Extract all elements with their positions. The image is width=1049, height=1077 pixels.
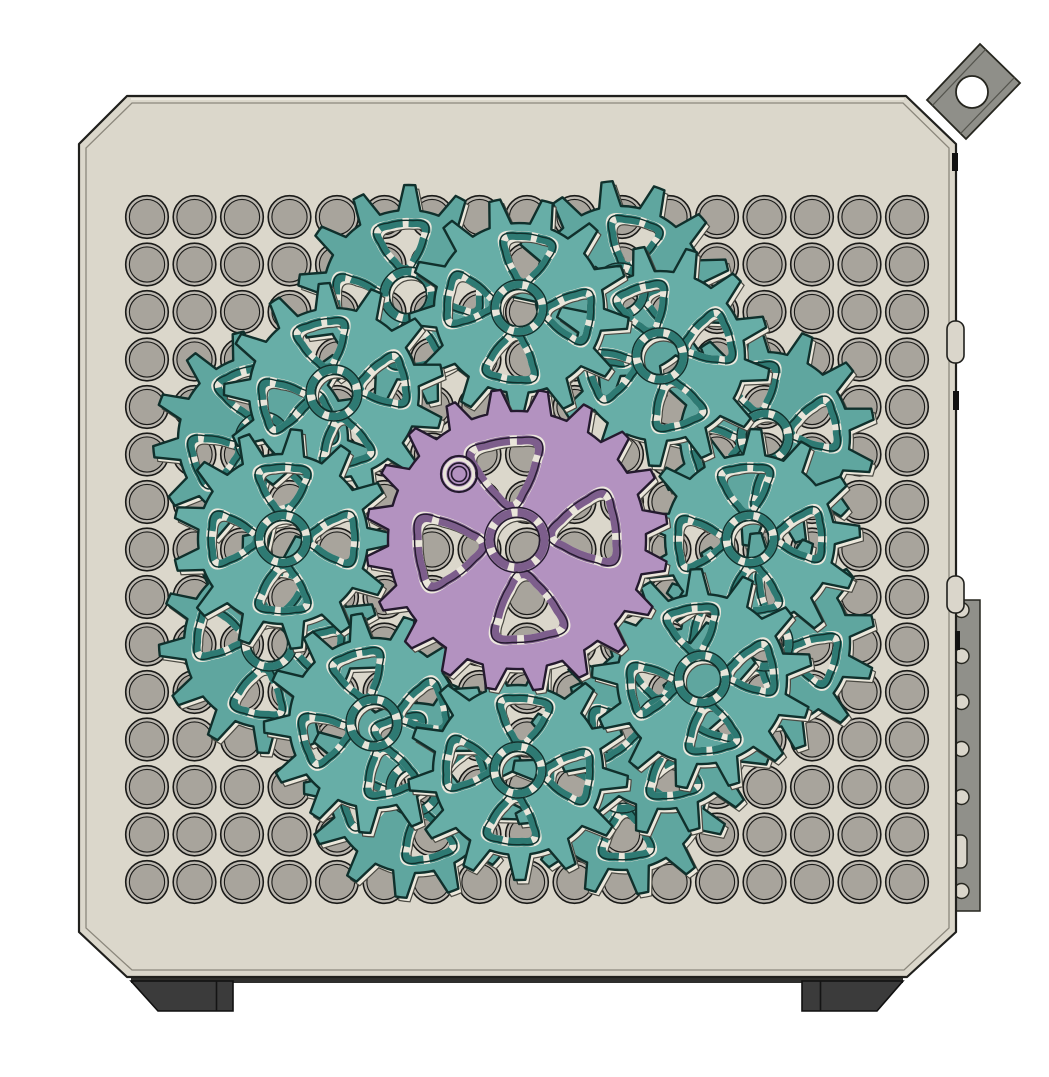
vent-hole xyxy=(177,247,212,282)
right-foot xyxy=(802,981,903,1011)
vent-hole xyxy=(889,484,924,519)
vent-hole xyxy=(129,674,164,709)
vent-hole xyxy=(272,864,307,899)
edge-clip xyxy=(955,631,960,650)
edge-clip xyxy=(953,391,959,410)
vent-hole xyxy=(889,864,924,899)
vent-hole xyxy=(889,437,924,472)
vent-hole xyxy=(794,199,829,234)
vent-hole xyxy=(889,247,924,282)
vent-hole xyxy=(747,247,782,282)
vent-hole xyxy=(177,294,212,329)
vent-hole xyxy=(129,389,164,424)
vent-hole xyxy=(794,247,829,282)
vent-hole xyxy=(129,247,164,282)
bearing-detail xyxy=(452,467,467,482)
edge-latch-slot xyxy=(947,321,964,363)
vent-hole xyxy=(842,817,877,852)
vent-hole xyxy=(889,389,924,424)
vent-hole xyxy=(747,864,782,899)
vent-hole xyxy=(747,817,782,852)
cad-canvas xyxy=(0,0,1049,1077)
vent-hole xyxy=(129,817,164,852)
vent-hole xyxy=(224,864,259,899)
vent-hole xyxy=(129,342,164,377)
vent-hole xyxy=(272,817,307,852)
vent-hole xyxy=(129,294,164,329)
vent-hole xyxy=(129,722,164,757)
vent-hole xyxy=(177,722,212,757)
vent-hole xyxy=(889,579,924,614)
vent-hole xyxy=(889,342,924,377)
vent-hole xyxy=(794,817,829,852)
vent-hole xyxy=(177,769,212,804)
vent-hole xyxy=(794,294,829,329)
vent-hole xyxy=(842,864,877,899)
edge-latch-slot xyxy=(947,576,964,613)
cad-viewport xyxy=(0,0,1049,1077)
mounting-tab-hole xyxy=(956,76,988,108)
vent-hole xyxy=(177,864,212,899)
vent-hole xyxy=(889,532,924,567)
vent-hole xyxy=(842,294,877,329)
vent-hole xyxy=(747,769,782,804)
vent-hole xyxy=(794,864,829,899)
vent-hole xyxy=(224,247,259,282)
vent-hole xyxy=(129,864,164,899)
left-foot xyxy=(131,981,233,1011)
vent-hole xyxy=(177,199,212,234)
vent-hole xyxy=(699,864,734,899)
vent-hole xyxy=(224,769,259,804)
vent-hole xyxy=(129,579,164,614)
vent-hole xyxy=(224,199,259,234)
vent-hole xyxy=(129,532,164,567)
vent-hole xyxy=(747,199,782,234)
edge-clip xyxy=(952,153,958,171)
vent-hole xyxy=(224,817,259,852)
vent-hole xyxy=(129,484,164,519)
vent-hole xyxy=(889,674,924,709)
vent-hole xyxy=(129,769,164,804)
vent-hole xyxy=(842,199,877,234)
vent-hole xyxy=(842,722,877,757)
vent-hole xyxy=(889,769,924,804)
vent-hole xyxy=(889,722,924,757)
vent-hole xyxy=(129,199,164,234)
vent-hole xyxy=(842,769,877,804)
vent-hole xyxy=(224,294,259,329)
vent-hole xyxy=(842,247,877,282)
vent-hole xyxy=(889,199,924,234)
vent-hole xyxy=(794,769,829,804)
vent-hole xyxy=(177,817,212,852)
vent-hole xyxy=(889,817,924,852)
vent-hole xyxy=(889,294,924,329)
vent-hole xyxy=(889,627,924,662)
vent-hole xyxy=(272,199,307,234)
